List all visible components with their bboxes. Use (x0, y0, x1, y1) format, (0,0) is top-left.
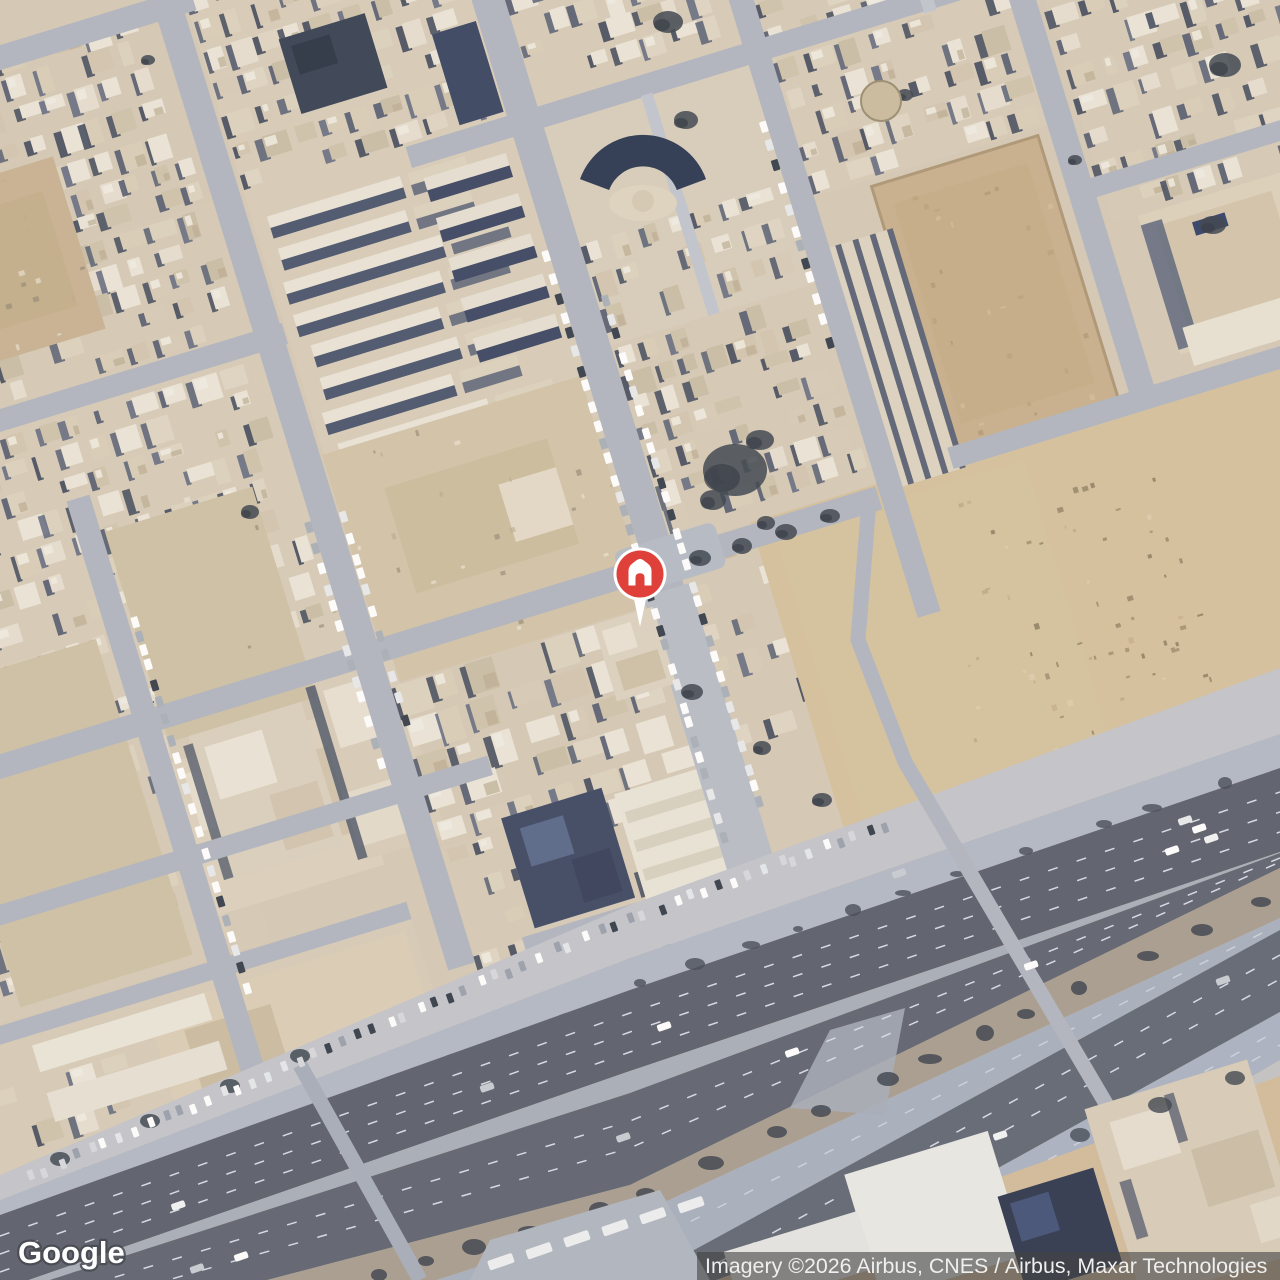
svg-text:Imagery ©2026 Airbus, CNES / A: Imagery ©2026 Airbus, CNES / Airbus, Max… (705, 1254, 1267, 1278)
svg-text:Google: Google (18, 1235, 125, 1270)
